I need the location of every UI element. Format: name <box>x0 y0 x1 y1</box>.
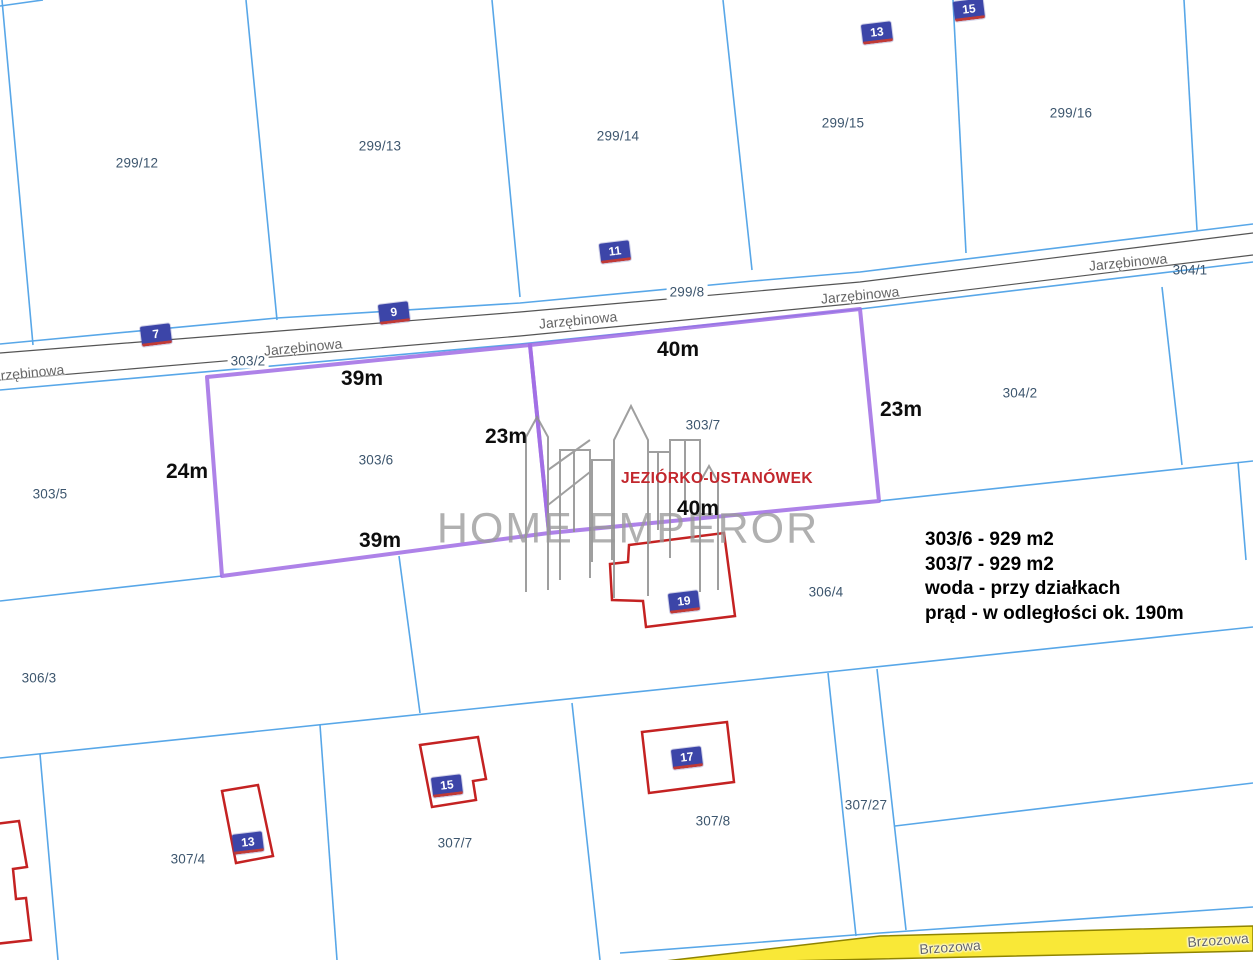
parcel-label: 307/4 <box>171 852 206 867</box>
parcel-label: 307/8 <box>696 814 731 829</box>
dimension-label: 23m <box>485 425 527 449</box>
parcel-label: 306/4 <box>809 585 844 600</box>
parcel-label: 303/6 <box>359 453 394 468</box>
parcel-label: 299/8 <box>667 285 708 300</box>
building-outline-15 <box>420 737 486 807</box>
cadastral-map: HOME EMPEROR JEZIÓRKO-USTANÓWEK 303/6 - … <box>0 0 1253 960</box>
info-line: 303/7 - 929 m2 <box>925 553 1184 578</box>
dimension-label: 40m <box>677 497 719 521</box>
address-number-badge: 15 <box>431 774 463 798</box>
parcel-label: 304/2 <box>1003 386 1038 401</box>
address-number-badge: 9 <box>378 301 410 325</box>
building-outline-left-edge <box>0 821 31 944</box>
parcel-label: 303/7 <box>686 418 721 433</box>
location-label: JEZIÓRKO-USTANÓWEK <box>621 470 813 488</box>
parcel-label: 303/2 <box>228 354 269 369</box>
parcel-label: 299/16 <box>1050 106 1093 121</box>
info-line: woda - przy działkach <box>925 577 1184 602</box>
address-number-badge: 15 <box>953 0 985 22</box>
parcel-label: 307/7 <box>438 836 473 851</box>
parcel-label: 304/1 <box>1173 263 1208 278</box>
parcel-label: 299/13 <box>359 139 402 154</box>
info-line: 303/6 - 929 m2 <box>925 528 1184 553</box>
address-number-badge: 19 <box>668 590 700 614</box>
parcel-label: 299/12 <box>116 156 159 171</box>
parcel-label: 307/27 <box>845 798 888 813</box>
address-number-badge: 7 <box>140 323 172 347</box>
address-number-badge: 11 <box>599 240 631 264</box>
address-number-badge: 13 <box>861 21 893 45</box>
parcel-label: 306/3 <box>22 671 57 686</box>
dimension-label: 23m <box>880 398 922 422</box>
info-line: prąd - w odległości ok. 190m <box>925 602 1184 627</box>
dimension-label: 40m <box>657 338 699 362</box>
address-number-badge: 17 <box>671 746 703 770</box>
dimension-label: 39m <box>359 529 401 553</box>
watermark-brand: HOME EMPEROR <box>437 505 819 554</box>
address-number-badge: 13 <box>232 831 264 855</box>
dimension-label: 24m <box>166 460 208 484</box>
parcel-label: 299/14 <box>597 129 640 144</box>
dimension-label: 39m <box>341 367 383 391</box>
parcel-label: 303/5 <box>33 487 68 502</box>
parcel-info-block: 303/6 - 929 m2303/7 - 929 m2woda - przy … <box>925 528 1184 626</box>
parcel-label: 299/15 <box>822 116 865 131</box>
